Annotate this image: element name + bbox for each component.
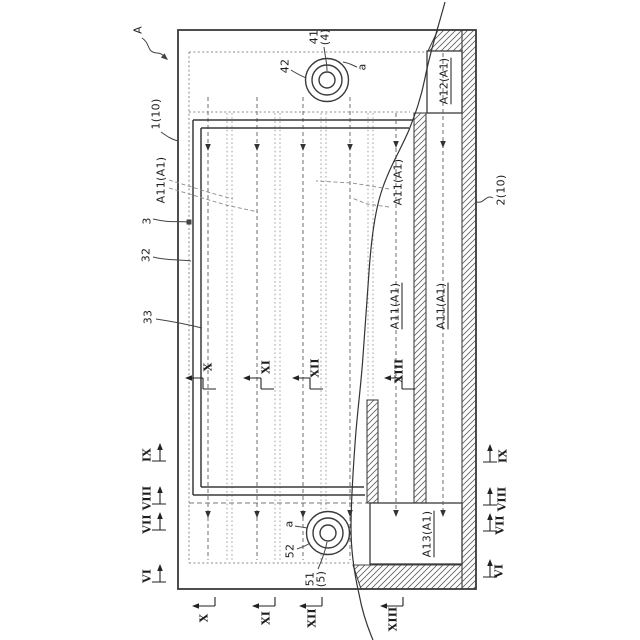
adhesive-track-lines xyxy=(227,113,373,560)
label-a11-mid: A11(A1) xyxy=(393,159,404,206)
section-bottom-xii: XII xyxy=(307,608,318,627)
label-member1: 1(10) xyxy=(151,98,162,129)
section-marker-lines-bottom xyxy=(192,597,403,609)
label-a11-left: A11(A1) xyxy=(156,157,167,204)
label-frame: 3 xyxy=(142,217,153,224)
section-right-vi: VI xyxy=(494,564,505,578)
section-bottom-x: X xyxy=(199,614,210,623)
label-frame-outer: 32 xyxy=(141,248,152,263)
section-right-vii: VII xyxy=(495,515,506,534)
hatch-rib-2 xyxy=(367,400,378,503)
section-interior-xii: XII xyxy=(310,358,321,377)
hatch-top-right-block xyxy=(428,30,462,51)
label-member2: 2(10) xyxy=(496,174,507,205)
label-a11-col2: A11(A1) xyxy=(436,283,447,330)
label-frame-inner: 33 xyxy=(143,310,154,325)
patent-figure: A 1(10) A11(A1) 3 32 33 2(10) 42 41 (4) … xyxy=(0,0,640,640)
section-bottom-xiii: XIII xyxy=(388,607,399,632)
hatch-rib-1 xyxy=(414,113,426,503)
section-interior-x: X xyxy=(203,363,214,372)
figure-linework xyxy=(0,0,640,640)
hatch-bottom-block xyxy=(353,565,462,589)
label-hole-top: 41 (4) xyxy=(310,29,331,45)
section-interior-xiii: XIII xyxy=(394,359,405,384)
section-right-ix: IX xyxy=(498,449,509,463)
section-marker-lines-left xyxy=(152,443,166,582)
section-left-viii: VIII xyxy=(142,486,153,511)
label-hole-top-point: a xyxy=(357,63,368,70)
section-left-vi: VI xyxy=(142,569,153,583)
section-left-ix: IX xyxy=(142,448,153,462)
section-interior-xi: XI xyxy=(261,360,272,374)
label-a12: A12(A1) xyxy=(439,58,450,105)
label-assembly: A xyxy=(133,26,144,34)
a11-dashed-leaders xyxy=(169,180,389,212)
bottom-hole-circles xyxy=(307,512,350,555)
label-hole-bottom-point: a xyxy=(284,520,295,527)
frame-leader-tick xyxy=(187,220,192,225)
label-hole-bottom: 51 (5) xyxy=(306,571,327,587)
label-a13: A13(A1) xyxy=(422,511,433,558)
label-hole-bottom-group: (5) xyxy=(316,571,327,587)
flow-lines xyxy=(208,97,350,560)
label-hole-top-ring: 42 xyxy=(280,59,291,74)
section-left-vii: VII xyxy=(142,514,153,533)
section-right-viii: VIII xyxy=(497,487,508,512)
hatch-right-band xyxy=(462,30,476,589)
section-bottom-xi: XI xyxy=(261,611,272,625)
section-marker-lines-interior xyxy=(185,375,415,389)
label-a11-col1: A11(A1) xyxy=(390,283,401,330)
region-a13-box xyxy=(370,503,462,564)
label-hole-top-group: (4) xyxy=(320,29,331,45)
label-hole-bottom-ring: 52 xyxy=(285,544,296,559)
